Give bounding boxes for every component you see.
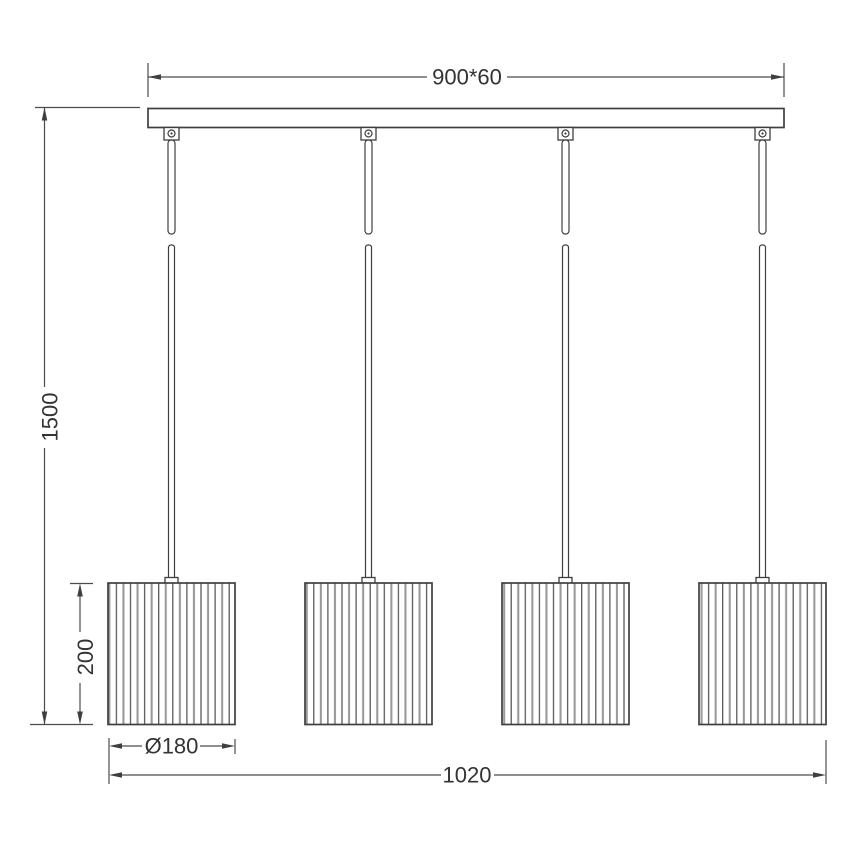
pendant [502, 128, 629, 725]
suspension-rod-upper [759, 140, 766, 234]
arrowhead-up [77, 584, 83, 597]
hanger-screw-center [367, 132, 369, 134]
pleated-shade [305, 583, 432, 725]
pleated-shade [699, 583, 826, 725]
arrowhead-left [148, 74, 161, 80]
arrowhead-left [109, 743, 122, 749]
suspension-rod-lower [563, 245, 569, 580]
hanger-screw-center [170, 132, 172, 134]
dimension-canopy-width: 900*60 [148, 63, 784, 97]
dimension-label-diameter: Ø180 [145, 734, 199, 759]
hanger-screw-center [564, 132, 566, 134]
suspension-rod-upper [562, 140, 569, 234]
fixture [108, 109, 826, 725]
dimension-overall-width: 1020 [109, 740, 826, 788]
suspension-rod-lower [366, 245, 372, 580]
pendant [108, 128, 235, 725]
arrowhead-up [42, 108, 48, 121]
pleated-shade [108, 583, 235, 725]
arrowhead-left [109, 772, 122, 778]
dimension-label-height: 1500 [38, 393, 63, 442]
pleated-shade [502, 583, 629, 725]
dimension-shade-diameter: Ø180 [109, 734, 235, 784]
dimension-shade-height: 200 [70, 584, 98, 725]
pendant-light-dimension-drawing: 900*60 1500 200 [0, 0, 868, 868]
arrowhead-right [222, 743, 235, 749]
arrowhead-down [42, 712, 48, 725]
ceiling-canopy-bar [148, 109, 784, 128]
arrowhead-right [771, 74, 784, 80]
suspension-rod-lower [169, 245, 175, 580]
hanger-screw-center [761, 132, 763, 134]
dimension-label-canopy: 900*60 [432, 65, 502, 90]
dimension-label-shade-height: 200 [73, 639, 98, 676]
suspension-rod-lower [760, 245, 766, 580]
pendant [699, 128, 826, 725]
suspension-rod-upper [168, 140, 175, 234]
pendant [305, 128, 432, 725]
arrowhead-right [813, 772, 826, 778]
dimension-label-overall-width: 1020 [443, 763, 492, 788]
technical-drawing-canvas: 900*60 1500 200 [0, 0, 868, 868]
suspension-rod-upper [365, 140, 372, 234]
arrowhead-down [77, 712, 83, 725]
